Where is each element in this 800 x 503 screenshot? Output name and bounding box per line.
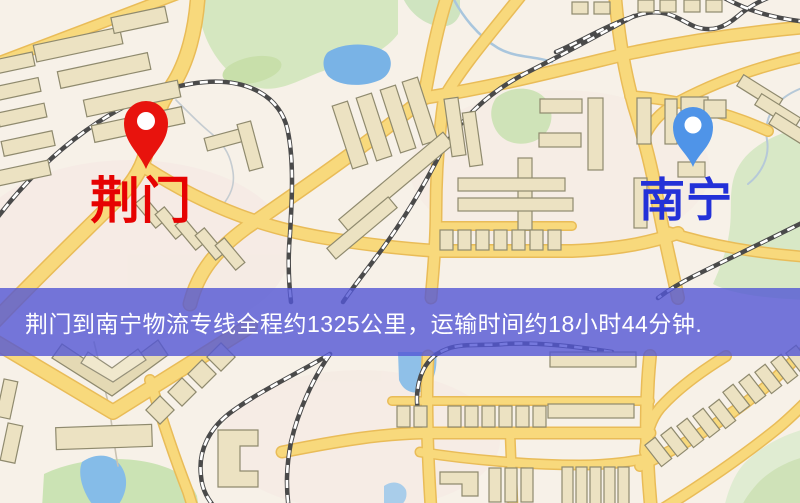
destination-pin-hole xyxy=(685,117,702,134)
origin-pin-hole xyxy=(137,112,155,130)
destination-city-label: 南宁 xyxy=(639,177,733,223)
route-info-banner: 荆门到南宁物流专线全程约1325公里，运输时间约18小时44分钟. xyxy=(0,288,800,356)
route-info-text: 荆门到南宁物流专线全程约1325公里，运输时间约18小时44分钟. xyxy=(25,305,702,339)
map-screenshot: 荆门 南宁 荆门到南宁物流专线全程约1325公里，运输时间约18小时44分钟. xyxy=(0,0,800,503)
origin-city-label: 荆门 xyxy=(90,176,192,226)
map-canvas xyxy=(0,0,800,503)
lake xyxy=(324,45,391,85)
